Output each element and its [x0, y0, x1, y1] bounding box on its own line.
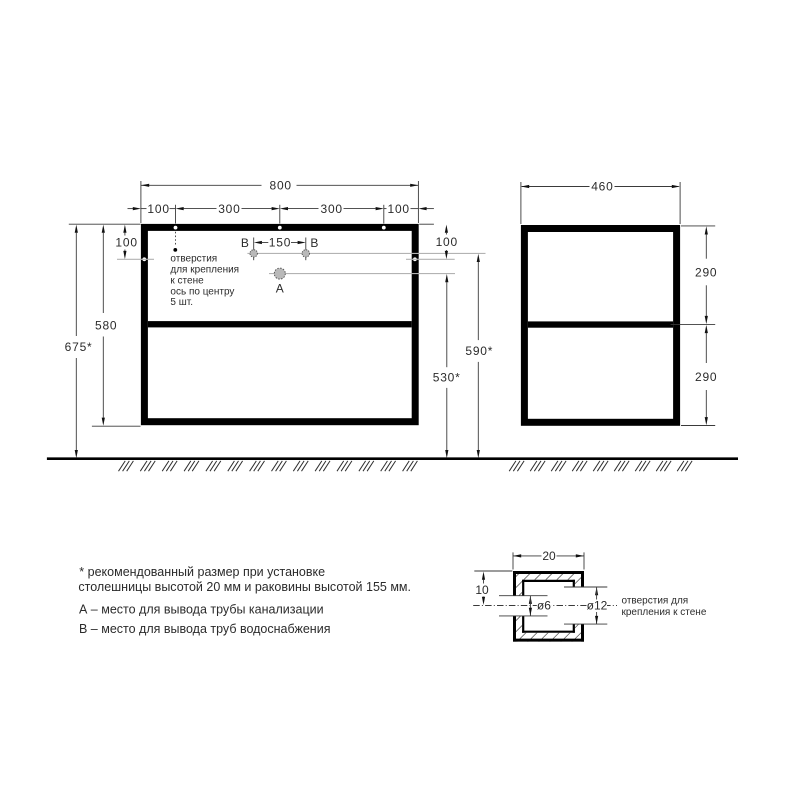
svg-text:А – место для вывода трубы кан: А – место для вывода трубы канализации [79, 603, 324, 617]
svg-text:20: 20 [542, 549, 556, 563]
svg-text:ø12: ø12 [587, 599, 608, 613]
svg-text:580: 580 [95, 319, 117, 333]
svg-text:100: 100 [115, 236, 137, 250]
svg-text:675*: 675* [65, 340, 93, 354]
svg-text:В: В [241, 236, 249, 250]
svg-text:крепления к стене: крепления к стене [622, 607, 707, 618]
svg-text:ось по центру: ось по центру [170, 286, 234, 297]
svg-text:А: А [276, 281, 284, 295]
svg-text:800: 800 [269, 179, 291, 193]
svg-text:для крепления: для крепления [170, 265, 239, 276]
svg-text:300: 300 [218, 202, 240, 216]
svg-text:100: 100 [147, 202, 169, 216]
svg-text:10: 10 [475, 583, 489, 597]
svg-text:к стене: к стене [170, 275, 204, 286]
svg-text:290: 290 [695, 370, 717, 384]
svg-text:ø6: ø6 [537, 599, 551, 613]
svg-text:460: 460 [591, 180, 613, 194]
svg-text:100: 100 [436, 235, 458, 249]
svg-text:590*: 590* [465, 344, 493, 358]
svg-text:столешницы высотой 20 мм и рак: столешницы высотой 20 мм и раковины высо… [78, 580, 411, 594]
svg-text:отверстия: отверстия [170, 254, 217, 265]
svg-text:530*: 530* [433, 371, 461, 385]
svg-text:* рекомендованный размер при у: * рекомендованный размер при установке [79, 565, 325, 579]
svg-text:отверстия для: отверстия для [622, 595, 689, 606]
svg-text:В – место для вывода труб водо: В – место для вывода труб водоснабжения [79, 622, 330, 636]
svg-text:В: В [310, 236, 318, 250]
svg-text:300: 300 [320, 202, 342, 216]
svg-text:5 шт.: 5 шт. [170, 297, 193, 308]
svg-text:290: 290 [695, 265, 717, 279]
svg-text:100: 100 [387, 202, 409, 216]
svg-text:150: 150 [269, 236, 291, 250]
